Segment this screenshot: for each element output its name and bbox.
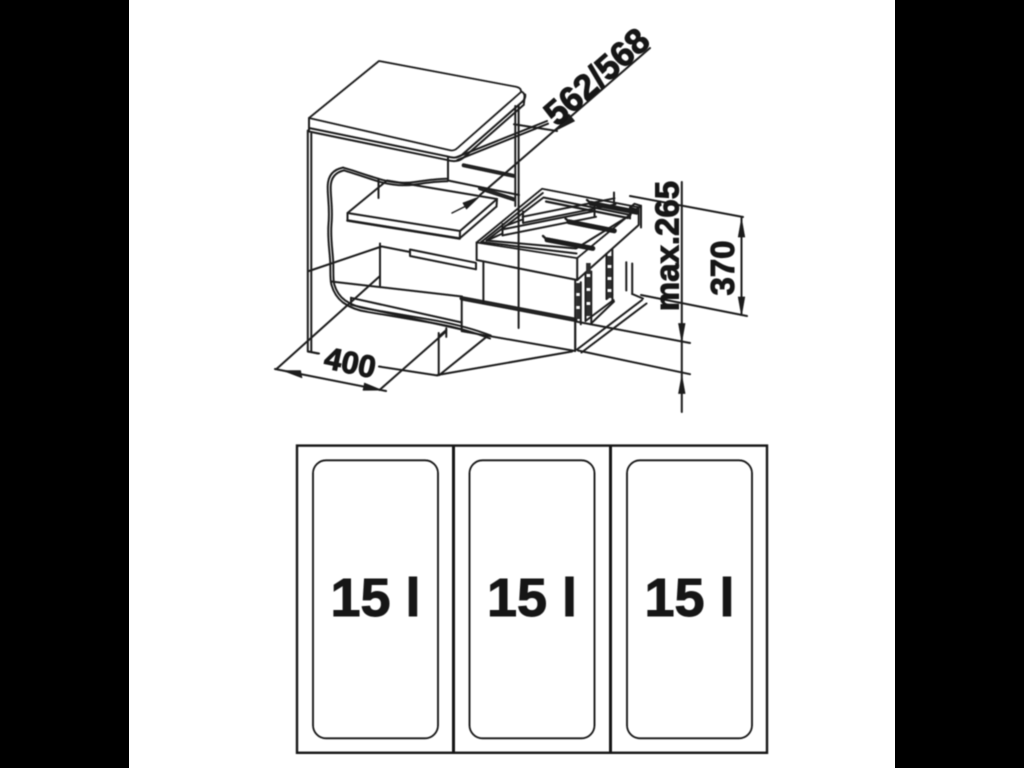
svg-text:15 l: 15 l	[487, 568, 577, 628]
svg-text:15 l: 15 l	[330, 568, 420, 628]
svg-text:400: 400	[321, 340, 379, 385]
svg-text:15 l: 15 l	[644, 568, 734, 628]
svg-text:562/568: 562/568	[537, 21, 658, 134]
svg-text:370: 370	[704, 240, 741, 295]
svg-text:max.265: max.265	[649, 181, 686, 311]
